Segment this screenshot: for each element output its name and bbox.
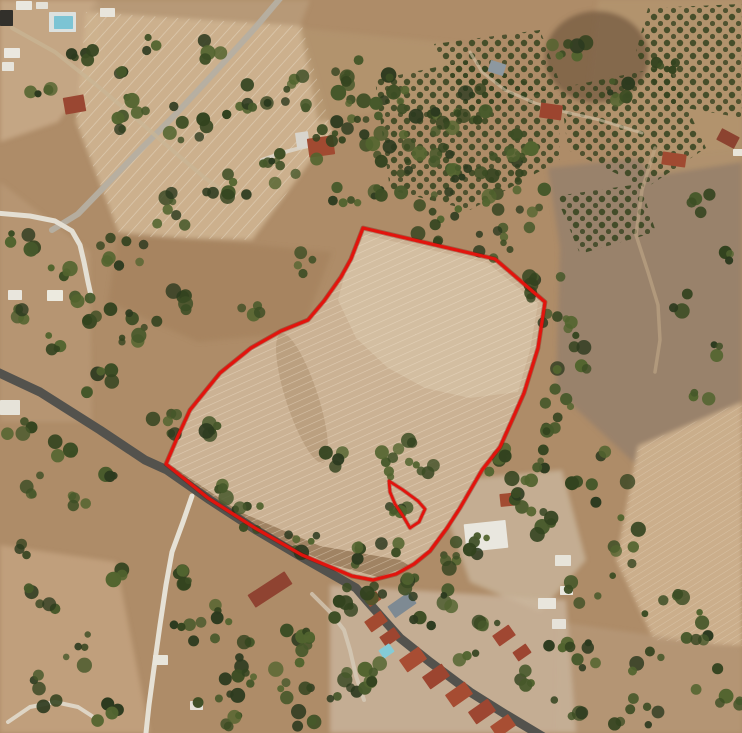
- bldg-white-n3: [100, 8, 115, 17]
- house-red-ne1: [539, 103, 563, 121]
- bldg-white-w4: [8, 290, 22, 300]
- bldg-dark-nw: [0, 10, 13, 26]
- bldg-white-sw1: [153, 655, 168, 665]
- bldg-white-w1: [4, 48, 20, 58]
- bldg-white-n1: [16, 1, 32, 10]
- satellite-map-canvas[interactable]: [0, 0, 742, 733]
- bldg-white-w2: [2, 62, 14, 71]
- bldg-white-ec1: [555, 555, 571, 566]
- bldg-white-w5: [0, 400, 20, 415]
- bldg-white-w3: [47, 290, 63, 301]
- satellite-map[interactable]: [0, 0, 742, 733]
- bldg-white-n2: [36, 2, 48, 9]
- pool-nw: [54, 16, 73, 29]
- bldg-white-v1: [538, 598, 556, 609]
- bldg-white-ne: [733, 149, 742, 156]
- bldg-white-v2: [552, 619, 566, 629]
- house-red-nw: [63, 94, 87, 114]
